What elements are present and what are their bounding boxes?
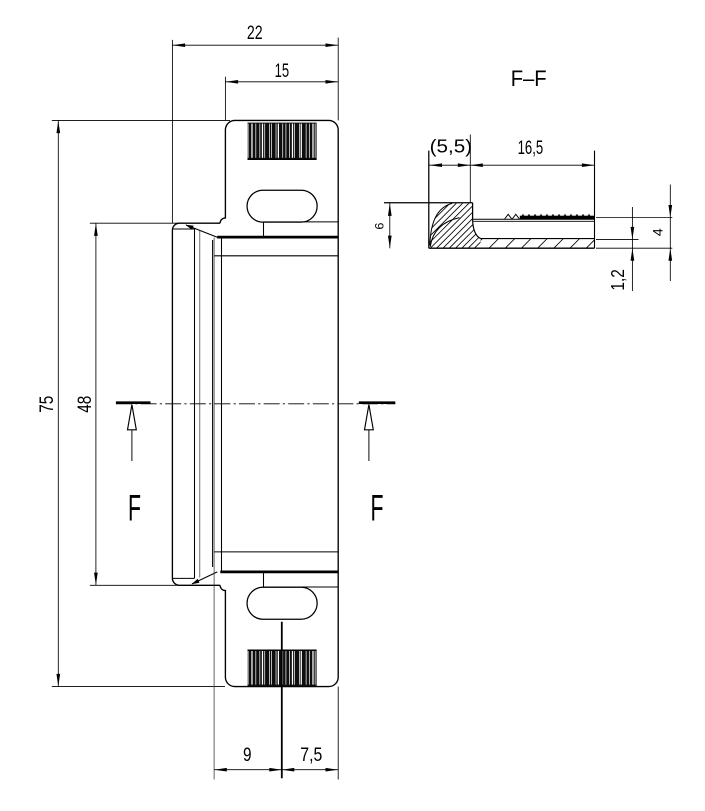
svg-text:(5,5): (5,5) — [430, 137, 473, 157]
svg-text:1,2: 1,2 — [607, 269, 628, 291]
svg-text:F: F — [128, 488, 141, 529]
svg-text:F: F — [371, 488, 384, 529]
svg-text:6: 6 — [373, 222, 387, 229]
svg-text:16,5: 16,5 — [518, 138, 544, 159]
svg-text:48: 48 — [75, 396, 96, 413]
svg-text:22: 22 — [247, 23, 263, 44]
svg-text:F–F: F–F — [511, 66, 547, 91]
svg-text:9: 9 — [243, 745, 252, 766]
svg-text:7,5: 7,5 — [300, 745, 322, 766]
svg-text:75: 75 — [37, 396, 58, 413]
svg-text:15: 15 — [275, 61, 290, 82]
svg-text:4: 4 — [650, 228, 666, 236]
